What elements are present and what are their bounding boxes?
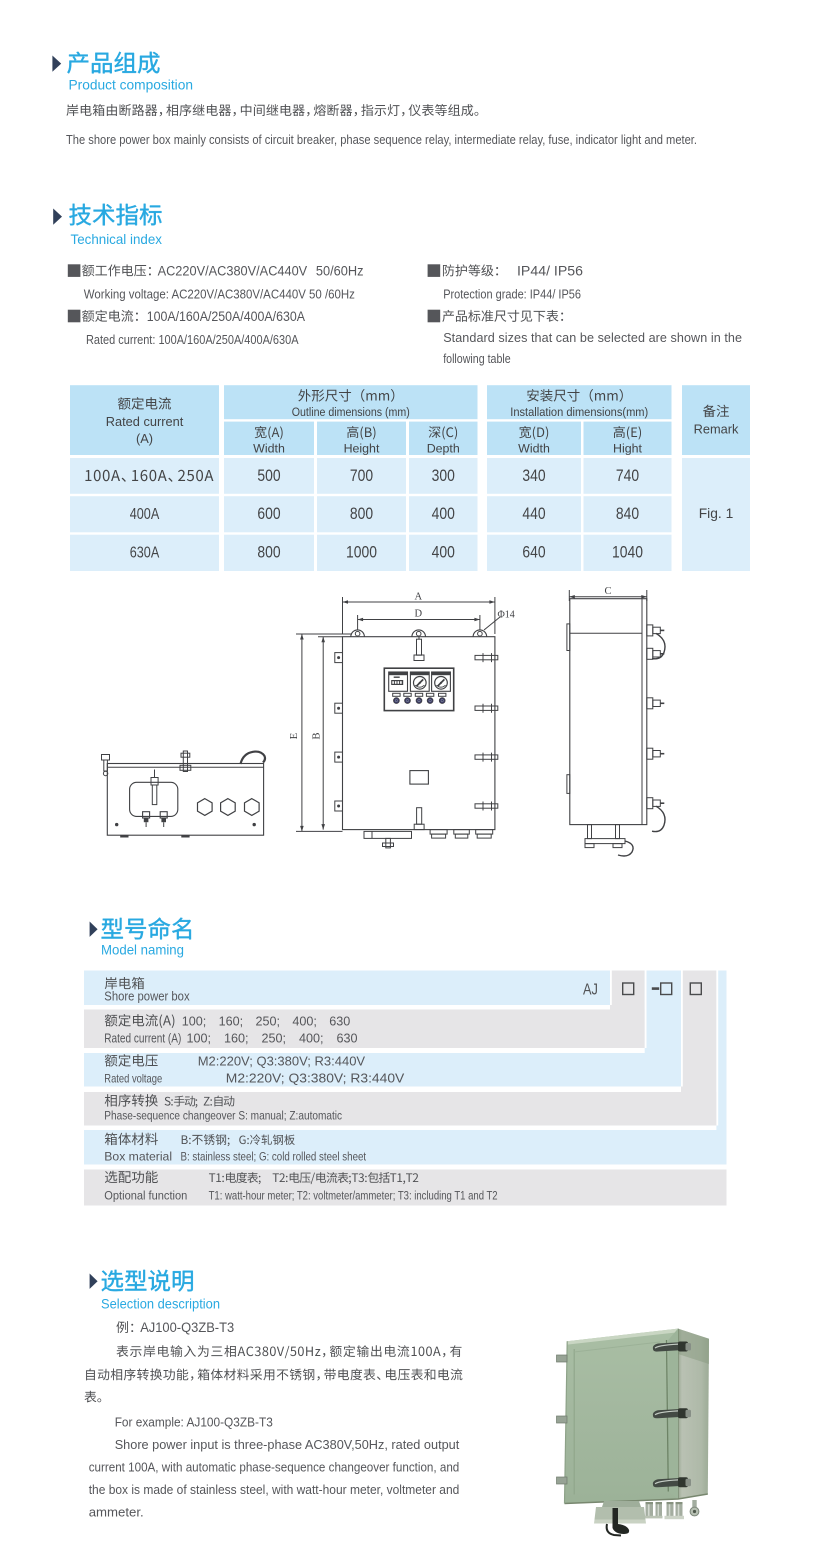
svg-text:740: 740 <box>616 467 639 485</box>
svg-text:630: 630 <box>329 1014 350 1028</box>
svg-text:Rated current: Rated current <box>106 414 184 429</box>
svg-text:ammeter.: ammeter. <box>89 1505 144 1520</box>
svg-text:AC220V/AC380V/AC440V: AC220V/AC380V/AC440V <box>158 263 308 278</box>
svg-text:250;: 250; <box>262 1032 287 1046</box>
svg-text:50/60Hz: 50/60Hz <box>316 263 364 278</box>
svg-text:160;: 160; <box>219 1014 244 1028</box>
svg-text:Product composition: Product composition <box>69 78 194 93</box>
svg-text:250;: 250; <box>256 1014 281 1028</box>
svg-text:current 100A, with automatic p: current 100A, with automatic phase-seque… <box>89 1460 460 1475</box>
svg-text:the box is made of stainless s: the box is made of stainless steel, with… <box>89 1482 460 1497</box>
svg-text:M2:220V; Q3:380V; R3:440V: M2:220V; Q3:380V; R3:440V <box>226 1070 405 1085</box>
svg-text:IP44/ IP56: IP44/ IP56 <box>517 263 583 278</box>
svg-text:840: 840 <box>616 505 639 523</box>
svg-text:Rated current (A): Rated current (A) <box>104 1032 181 1046</box>
svg-text:Remark: Remark <box>694 422 739 437</box>
svg-text:Selection description: Selection description <box>101 1297 220 1312</box>
svg-text:Phase-sequence changeover S:: Phase-sequence changeover S: manual; Z:a… <box>104 1108 342 1122</box>
svg-text:Depth: Depth <box>427 442 460 456</box>
svg-text:E: E <box>289 733 300 739</box>
svg-text:400: 400 <box>432 505 455 523</box>
svg-text:Protection grade: IP44/ IP56: Protection grade: IP44/ IP56 <box>443 286 581 301</box>
svg-text:340: 340 <box>522 467 545 485</box>
svg-text:100;: 100; <box>187 1032 212 1046</box>
svg-text:For example: AJ100-Q3ZB-T3: For example: AJ100-Q3ZB-T3 <box>115 1414 273 1429</box>
svg-text:Working voltage: AC220V/AC380V: Working voltage: AC220V/AC380V/AC440V 50… <box>84 286 355 301</box>
svg-text:630: 630 <box>337 1032 358 1046</box>
svg-text:500: 500 <box>257 467 280 485</box>
svg-text:T1: watt-hour meter; T2: voltm: T1: watt-hour meter; T2: voltmeter/ammet… <box>209 1188 498 1202</box>
svg-text:AJ: AJ <box>583 981 598 998</box>
svg-text:Width: Width <box>518 442 550 456</box>
svg-text:(A): (A) <box>136 431 153 446</box>
svg-text:400;: 400; <box>292 1014 317 1028</box>
svg-text:The shore power box mainly con: The shore power box mainly consists of c… <box>66 132 697 147</box>
svg-text:Technical index: Technical index <box>71 232 163 247</box>
svg-text:1000: 1000 <box>346 544 377 562</box>
svg-text:400;: 400; <box>299 1032 324 1046</box>
svg-text:1040: 1040 <box>612 544 643 562</box>
svg-text:C: C <box>605 586 612 597</box>
svg-text:A: A <box>415 592 423 603</box>
svg-text:600: 600 <box>257 505 280 523</box>
svg-text:Outline dimensions (mm): Outline dimensions (mm) <box>292 405 410 419</box>
svg-text:800: 800 <box>257 544 280 562</box>
svg-text:Standard sizes that can be sel: Standard sizes that can be selected are … <box>443 331 742 345</box>
svg-text:Optional function: Optional function <box>104 1188 187 1202</box>
svg-text:700: 700 <box>350 467 373 485</box>
svg-text:Model naming: Model naming <box>101 943 184 958</box>
svg-text:Φ14: Φ14 <box>498 610 515 621</box>
svg-text:400: 400 <box>432 544 455 562</box>
svg-text:300: 300 <box>432 467 455 485</box>
svg-text:Box material: Box material <box>104 1149 172 1163</box>
svg-text:following table: following table <box>443 351 511 366</box>
svg-text:Rated current: 100A/160A/250A/: Rated current: 100A/160A/250A/400A/630A <box>86 332 299 347</box>
svg-text:Shore power box: Shore power box <box>104 989 190 1003</box>
svg-text:Installation dimensions(mm): Installation dimensions(mm) <box>510 405 648 419</box>
svg-text:Shore power input is three-pha: Shore power input is three-phase AC380V,… <box>115 1437 460 1452</box>
svg-text:160;: 160; <box>224 1032 249 1046</box>
svg-text:Height: Height <box>344 442 380 456</box>
svg-text:100A/160A/250A/400A/630A: 100A/160A/250A/400A/630A <box>147 309 305 324</box>
svg-text:800: 800 <box>350 505 373 523</box>
svg-text:Rated voltage: Rated voltage <box>104 1072 162 1085</box>
svg-text:B: stainless steel; G: cold ro: B: stainless steel; G: cold rolled steel… <box>181 1149 367 1163</box>
svg-text:Hight: Hight <box>613 442 642 456</box>
svg-text:Fig. 1: Fig. 1 <box>699 506 734 521</box>
svg-text:Width: Width <box>253 442 285 456</box>
svg-text:400A: 400A <box>130 506 160 523</box>
svg-text:D: D <box>415 609 423 620</box>
svg-text:100;: 100; <box>182 1014 207 1028</box>
svg-text:B: B <box>312 732 323 739</box>
svg-text:AJ100-Q3ZB-T3: AJ100-Q3ZB-T3 <box>140 1320 234 1335</box>
svg-text:440: 440 <box>522 505 545 523</box>
svg-text:640: 640 <box>522 544 545 562</box>
svg-text:630A: 630A <box>130 545 160 562</box>
svg-text:M2:220V; Q3:380V; R3:440V: M2:220V; Q3:380V; R3:440V <box>198 1054 366 1069</box>
